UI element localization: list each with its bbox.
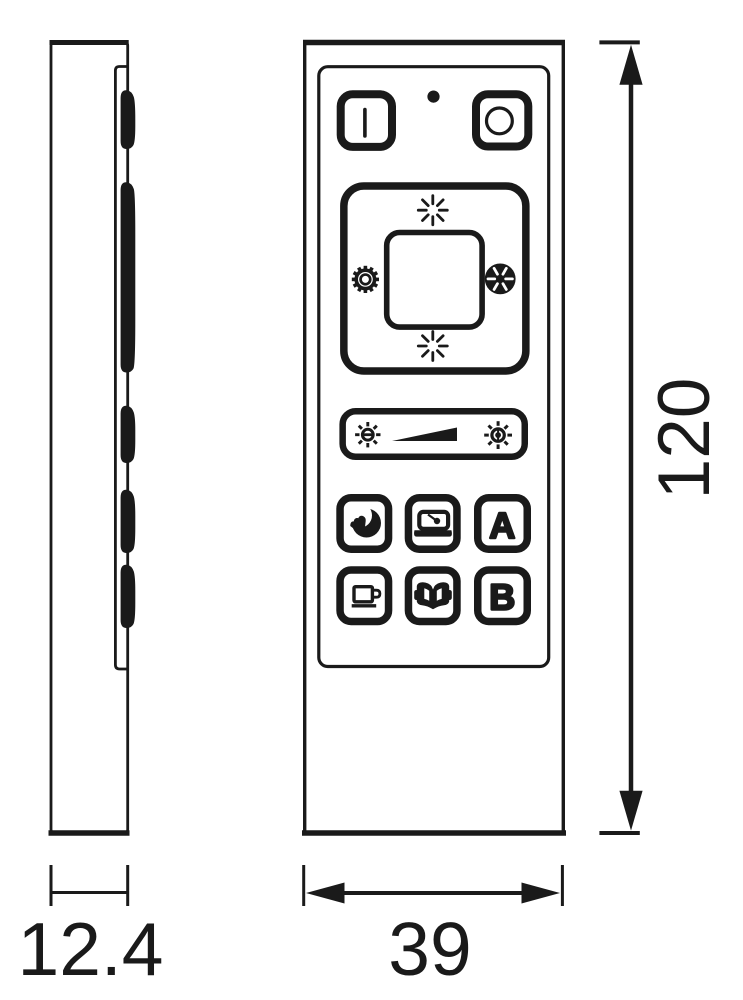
svg-text:A: A — [489, 505, 515, 546]
svg-text:B: B — [489, 577, 515, 618]
svg-text:12.4: 12.4 — [18, 907, 164, 991]
svg-text:39: 39 — [388, 907, 471, 991]
svg-text:120: 120 — [644, 378, 725, 500]
